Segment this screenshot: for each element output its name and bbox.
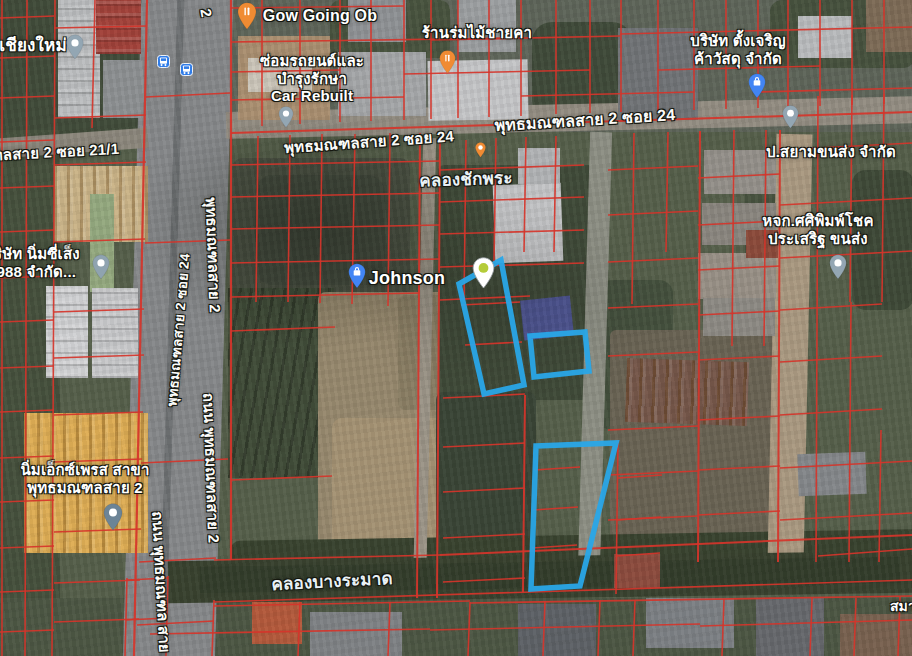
poi-johnson-line: Johnson	[369, 268, 445, 289]
poi-tang-charoen-line: ค้าวัสดุ จำกัด	[690, 50, 786, 68]
highlighted-parcels-overlay	[0, 0, 912, 656]
poi-sasipimchok-transport[interactable]: หจก.ศศิพิมพ์โชคประเสริฐ ขนส่ง	[762, 212, 873, 247]
poi-gow-going-ob-line: Gow Going Ob	[263, 7, 377, 26]
marker-bus-stop-1[interactable]	[157, 55, 170, 68]
poi-tang-charoen-line: บริษัท ตั้งเจริญ	[690, 32, 786, 50]
poi-ran-rom-mai-chai-kha[interactable]: ร้านร่มไม้ชายคา	[422, 24, 532, 42]
marker-bus-stop-2[interactable]	[180, 63, 193, 76]
poi-car-rebuilt-line: บำรุงรักษา	[260, 70, 364, 88]
marker-tang-charoen[interactable]	[748, 73, 766, 99]
poi-chiang-mai[interactable]: เชียงใหม่	[0, 36, 67, 56]
marker-nim-express[interactable]	[103, 503, 123, 531]
poi-nim-see-seng-1988[interactable]: บริษัท นิ่มซี่เส็ง1988 จำกัด...	[0, 245, 80, 280]
poi-nim-express[interactable]: นิ่มเอ็กซ์เพรส สาขาพุทธมณฑลสาย 2	[20, 461, 149, 496]
poi-car-rebuilt-line: ซ่อมรถยนต์และ	[260, 52, 364, 70]
satellite-map[interactable]: ทลสาย 2 ซอย 21/12พุทธมณฑลสาย 2 ซอย 24พุท…	[0, 0, 912, 656]
poi-siam-transport[interactable]: ป.สยามขนส่ง จำกัด	[766, 143, 896, 161]
poi-chiang-mai-line: เชียงใหม่	[0, 36, 67, 56]
marker-dropped-pin[interactable]	[472, 257, 495, 289]
poi-gow-going-ob[interactable]: Gow Going Ob	[263, 7, 377, 26]
highlighted-parcel-c	[531, 443, 616, 589]
marker-gow-going-ob[interactable]	[237, 2, 257, 30]
marker-chiang-mai[interactable]	[66, 34, 84, 60]
poi-nim-express-line: นิ่มเอ็กซ์เพรส สาขา	[20, 461, 149, 479]
marker-siam-transport[interactable]	[782, 105, 799, 129]
marker-ran-rom-mai[interactable]	[439, 50, 456, 74]
poi-tang-charoen[interactable]: บริษัท ตั้งเจริญค้าวัสดุ จำกัด	[690, 32, 786, 67]
poi-car-rebuilt-line: Car Rebuilt	[260, 88, 364, 106]
marker-nim-see-seng[interactable]	[92, 254, 110, 280]
poi-nim-see-seng-1988-line: 1988 จำกัด...	[0, 263, 80, 281]
poi-siam-transport-line: ป.สยามขนส่ง จำกัด	[766, 143, 896, 161]
poi-car-rebuilt[interactable]: ซ่อมรถยนต์และบำรุงรักษาCar Rebuilt	[260, 52, 364, 105]
poi-sasipimchok-transport-line: ประเสริฐ ขนส่ง	[762, 230, 873, 248]
poi-sama-line: สมา	[890, 598, 912, 615]
poi-nim-see-seng-1988-line: บริษัท นิ่มซี่เส็ง	[0, 245, 80, 263]
poi-sama[interactable]: สมา	[890, 598, 912, 615]
highlighted-parcel-b	[530, 332, 589, 377]
poi-sasipimchok-transport-line: หจก.ศศิพิมพ์โชค	[762, 212, 873, 230]
poi-johnson[interactable]: Johnson	[369, 268, 445, 289]
marker-chak-phra-poi[interactable]	[475, 142, 486, 158]
marker-sasipimchok[interactable]	[829, 254, 847, 280]
poi-ran-rom-mai-chai-kha-line: ร้านร่มไม้ชายคา	[422, 24, 532, 42]
marker-johnson[interactable]	[348, 263, 366, 289]
marker-car-rebuilt[interactable]	[278, 106, 294, 128]
poi-nim-express-line: พุทธมณฑลสาย 2	[20, 479, 149, 497]
